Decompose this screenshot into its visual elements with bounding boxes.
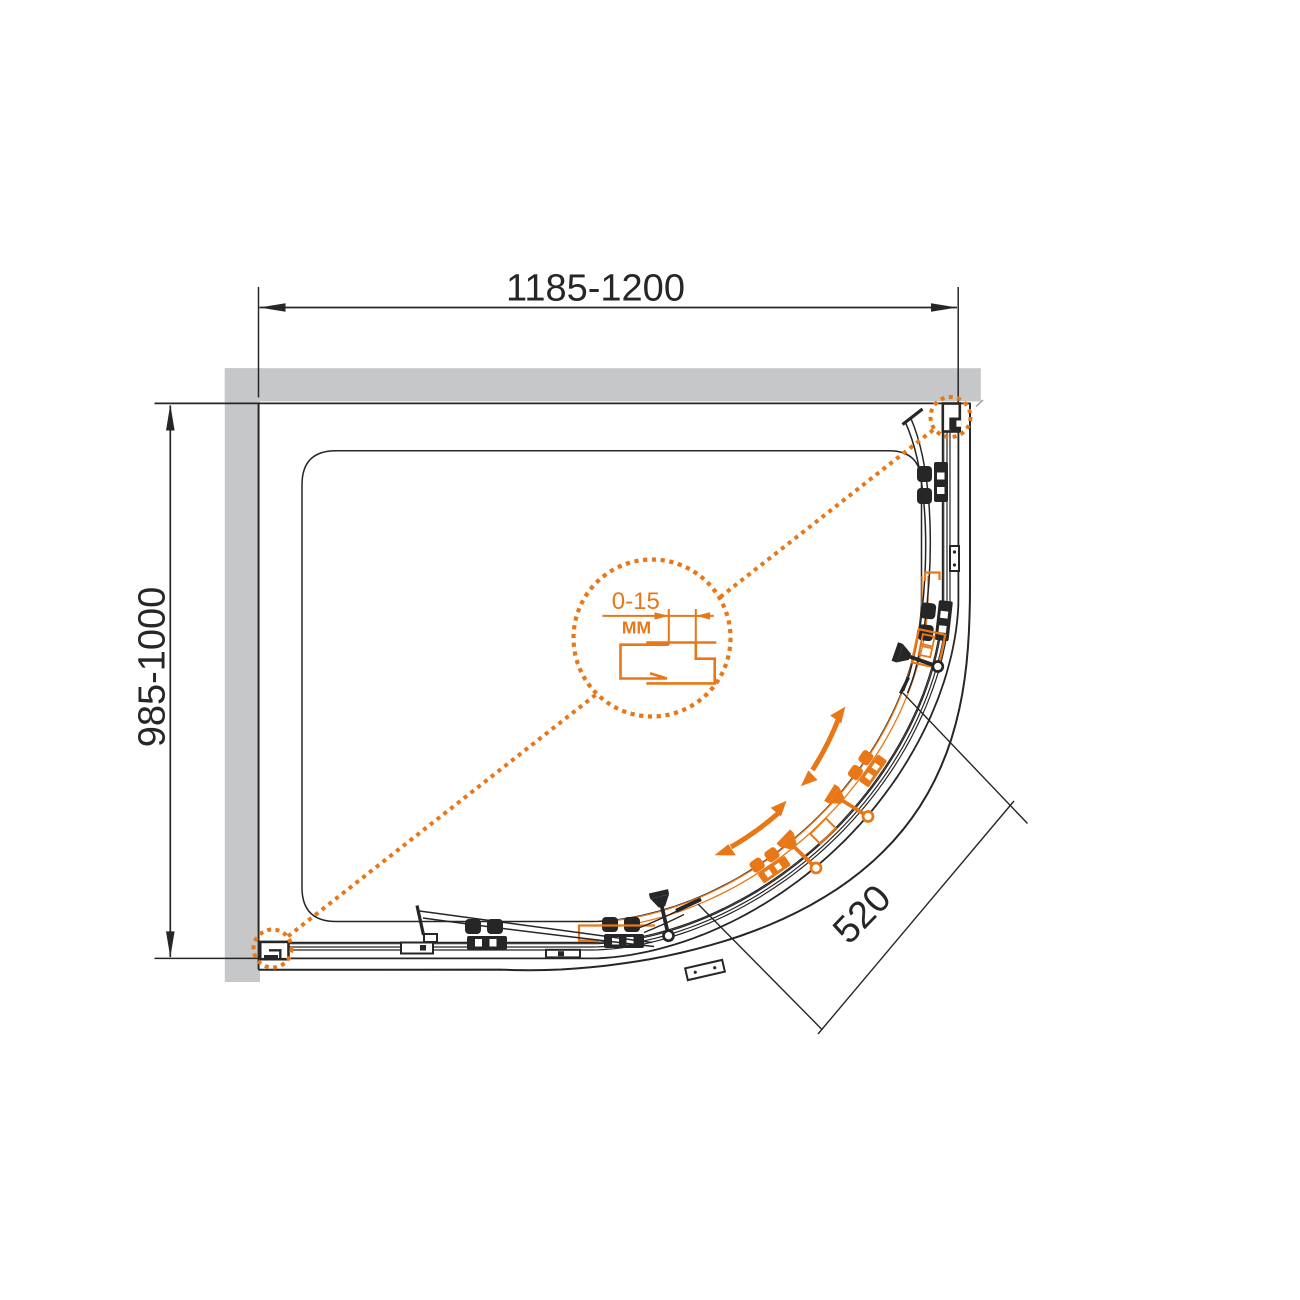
svg-text:ММ: ММ: [622, 618, 651, 638]
svg-text:985-1000: 985-1000: [132, 587, 174, 748]
svg-text:1185-1200: 1185-1200: [506, 268, 685, 310]
svg-text:0-15: 0-15: [612, 588, 660, 615]
